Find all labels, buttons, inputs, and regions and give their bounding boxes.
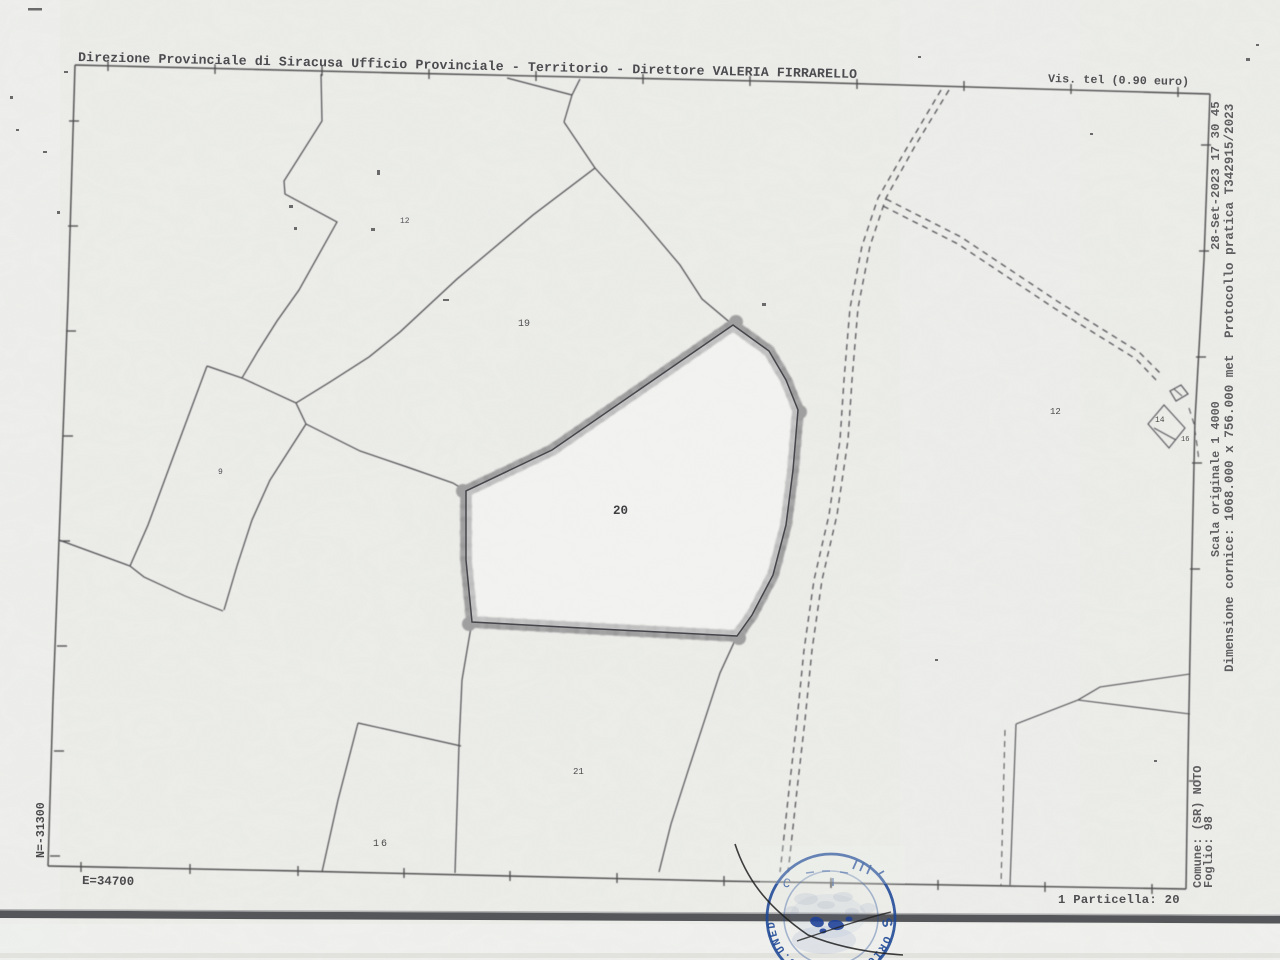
svg-text:N=-31300: N=-31300 xyxy=(35,802,48,858)
svg-text:Protocollo pratica T342915/202: Protocollo pratica T342915/2023 xyxy=(1223,104,1237,338)
svg-text:12: 12 xyxy=(400,217,410,226)
svg-text:1 Particella: 20: 1 Particella: 20 xyxy=(1058,893,1180,907)
svg-text:21: 21 xyxy=(573,767,584,777)
svg-text:12: 12 xyxy=(1050,407,1061,417)
svg-text:E=34700: E=34700 xyxy=(82,874,134,889)
svg-text:20: 20 xyxy=(613,504,628,518)
svg-text:Scala originale 1 4000: Scala originale 1 4000 xyxy=(1209,401,1223,557)
svg-text:19: 19 xyxy=(518,319,530,330)
svg-text:Dimensione cornice: 1068.000 x: Dimensione cornice: 1068.000 x 756.000 m… xyxy=(1223,355,1237,672)
svg-text:14: 14 xyxy=(1155,416,1165,425)
svg-text:Foglio: 98: Foglio: 98 xyxy=(1202,816,1216,888)
svg-text:28-Set-2023 17 30 45: 28-Set-2023 17 30 45 xyxy=(1209,101,1223,250)
svg-text:9: 9 xyxy=(218,468,223,477)
svg-text:16: 16 xyxy=(1181,436,1189,444)
svg-text:16: 16 xyxy=(373,839,389,850)
